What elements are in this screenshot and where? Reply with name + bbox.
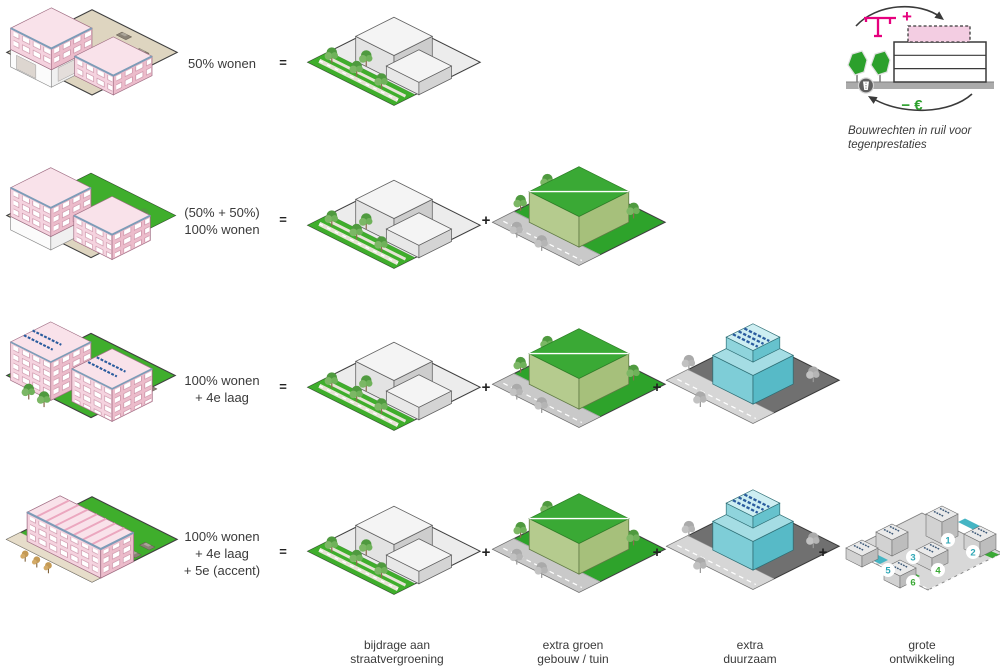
equals-row2: = [274,212,292,227]
plus-row4-3: + [814,544,832,561]
legend-illustration: + − € [842,2,1000,120]
marker-6: 6 [910,577,915,588]
equals-row1: = [274,55,292,70]
marker-4: 4 [935,565,941,576]
equals-row4: = [274,544,292,559]
marker-3: 3 [910,552,915,563]
footer-label-extra-groen: extra groengebouw / tuin [483,639,663,666]
euro-icon: − € [901,97,923,114]
legend-caption: Bouwrechten in ruil voor tegenprestaties [848,124,998,152]
illustration-grote-ontwikkeling: 1 2 3 4 5 6 [842,492,1000,614]
footer-label-extra-duurzaam: extraduurzaam [660,639,840,666]
illustration-straatvergroening-row2 [303,163,485,297]
illustration-groen-gebouw-row2 [488,160,670,294]
marker-2: 2 [970,547,975,558]
illustration-groen-gebouw-row4 [488,487,670,621]
illustration-straatvergroening-row1 [303,0,485,134]
diagram-canvas: + − € Bouwrechten in ruil voor tegenpres… [0,0,1000,666]
marker-1: 1 [945,535,951,546]
equals-row3: = [274,379,292,394]
illustration-duurzaam-row3 [662,318,844,452]
building-outline [894,42,986,82]
arrow-top-icon [856,7,944,26]
illustration-groen-gebouw-row3 [488,322,670,456]
road-icon [859,78,874,93]
footer-label-grote-ontwikkeling: groteontwikkeling [832,639,1000,666]
crane-icon [864,18,896,36]
illustration-straatvergroening-row3 [303,325,485,459]
plus-icon: + [902,7,912,26]
footer-label-straatvergroening: bijdrage aanstraatvergroening [307,639,487,666]
tree-icon [871,51,890,83]
marker-5: 5 [885,565,891,576]
illustration-straatvergroening-row4 [303,489,485,623]
extra-floor-dashed [908,26,970,42]
